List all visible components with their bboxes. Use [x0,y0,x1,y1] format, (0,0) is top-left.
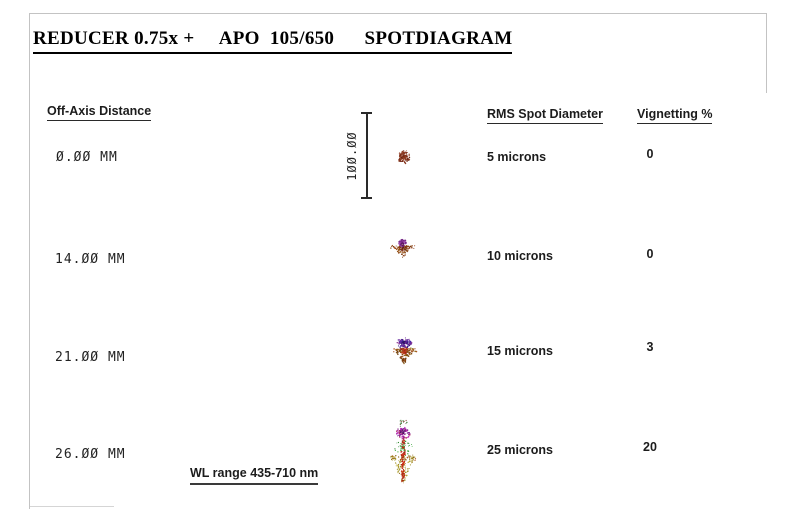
wavelength-range-label: WL range 435-710 nm [190,466,318,485]
off-axis-value-row2: 14.ØØ MM [55,252,126,267]
spot-diagram-page: REDUCER 0.75x + APO 105/650 SPOTDIAGRAM … [0,0,800,509]
scale-bar-bottom-cap [361,197,372,199]
off-axis-value-row4: 26.ØØ MM [55,447,126,462]
rms-value-row2: 10 microns [487,249,553,263]
column-header-vignetting: Vignetting % [637,107,712,124]
page-border-right [766,13,767,93]
scale-bar-top-cap [361,112,372,114]
vignetting-value-row3: 3 [618,340,682,354]
spot-cluster-row2 [389,238,417,264]
rms-value-row4: 25 microns [487,443,553,457]
page-title: REDUCER 0.75x + APO 105/650 SPOTDIAGRAM [33,28,512,54]
rms-value-row3: 15 microns [487,344,553,358]
off-axis-value-row3: 21.ØØ MM [55,350,126,365]
spot-cluster-row1 [396,149,412,165]
vignetting-value-row1: 0 [618,147,682,161]
page-border-top [29,13,767,14]
vignetting-value-row2: 0 [618,247,682,261]
vignetting-value-row4: 20 [618,440,682,454]
scale-bar-label: 1ØØ.ØØ [344,120,360,192]
scale-bar-stem [366,113,368,199]
page-border-bottom [29,506,114,507]
column-header-off-axis-distance: Off-Axis Distance [47,104,151,121]
spot-cluster-row4 [388,418,418,488]
page-border-left [29,13,30,509]
spot-cluster-row3 [390,336,418,368]
column-header-rms-spot-diameter: RMS Spot Diameter [487,107,603,124]
off-axis-value-row1: Ø.ØØ MM [56,150,118,165]
rms-value-row1: 5 microns [487,150,546,164]
